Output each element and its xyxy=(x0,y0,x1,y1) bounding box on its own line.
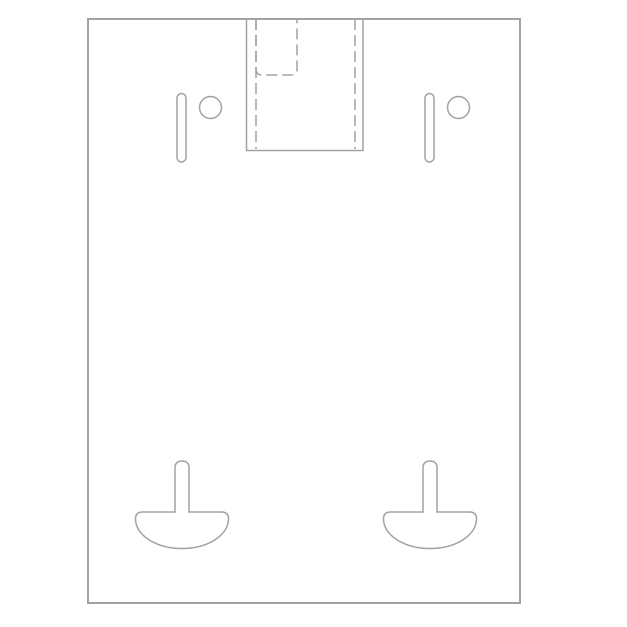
screw-hole-right xyxy=(448,97,470,119)
bracket-drawing xyxy=(0,0,627,627)
mount-slot-left xyxy=(177,94,186,163)
screw-hole-left xyxy=(200,97,222,119)
drawing-canvas xyxy=(0,0,627,627)
mount-slot-right xyxy=(425,94,434,163)
